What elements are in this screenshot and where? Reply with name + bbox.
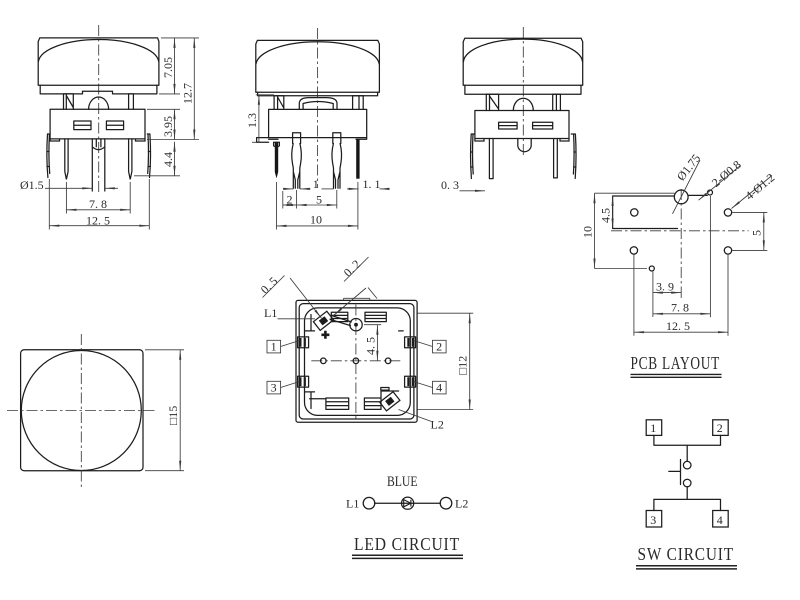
svg-text:1. 1: 1. 1 — [363, 177, 381, 191]
svg-text:5: 5 — [750, 230, 764, 236]
svg-text:4: 4 — [717, 513, 723, 527]
svg-text:Ø1.5: Ø1.5 — [20, 178, 44, 192]
svg-text:10: 10 — [310, 213, 322, 227]
svg-text:□12: □12 — [456, 356, 470, 375]
svg-text:1.3: 1.3 — [245, 113, 259, 128]
svg-text:7. 8: 7. 8 — [671, 301, 689, 315]
svg-text:0. 3: 0. 3 — [441, 178, 459, 192]
svg-text:4.4: 4.4 — [161, 152, 175, 167]
svg-text:L2: L2 — [431, 418, 444, 432]
svg-text:LED CIRCUIT: LED CIRCUIT — [354, 534, 460, 554]
svg-text:10: 10 — [581, 226, 595, 238]
svg-text:L2: L2 — [455, 497, 468, 511]
svg-text:2: 2 — [287, 193, 293, 207]
svg-text:2: 2 — [717, 421, 723, 435]
svg-text:PCB LAYOUT: PCB LAYOUT — [631, 353, 721, 373]
svg-text:3: 3 — [650, 513, 656, 527]
svg-text:7.05: 7.05 — [161, 57, 175, 78]
svg-text:1: 1 — [313, 177, 319, 191]
svg-text:12.7: 12.7 — [181, 83, 195, 104]
svg-text:3.95: 3.95 — [161, 116, 175, 137]
svg-text:L1: L1 — [346, 497, 359, 511]
svg-text:3. 9: 3. 9 — [656, 280, 674, 294]
svg-text:12. 5: 12. 5 — [86, 214, 110, 228]
svg-text:4.5: 4.5 — [599, 208, 613, 223]
svg-text:2: 2 — [436, 340, 442, 354]
svg-text:7. 8: 7. 8 — [89, 197, 107, 211]
svg-text:1: 1 — [650, 421, 656, 435]
svg-text:L1: L1 — [264, 306, 277, 320]
svg-text:4: 4 — [436, 381, 442, 395]
svg-text:1: 1 — [271, 340, 277, 354]
svg-text:3: 3 — [271, 381, 277, 395]
svg-text:12. 5: 12. 5 — [666, 319, 690, 333]
svg-text:SW CIRCUIT: SW CIRCUIT — [638, 544, 735, 564]
svg-text:BLUE: BLUE — [387, 474, 418, 490]
svg-text:□15: □15 — [166, 406, 180, 425]
svg-text:5: 5 — [316, 193, 322, 207]
svg-text:4. 5: 4. 5 — [364, 337, 378, 355]
